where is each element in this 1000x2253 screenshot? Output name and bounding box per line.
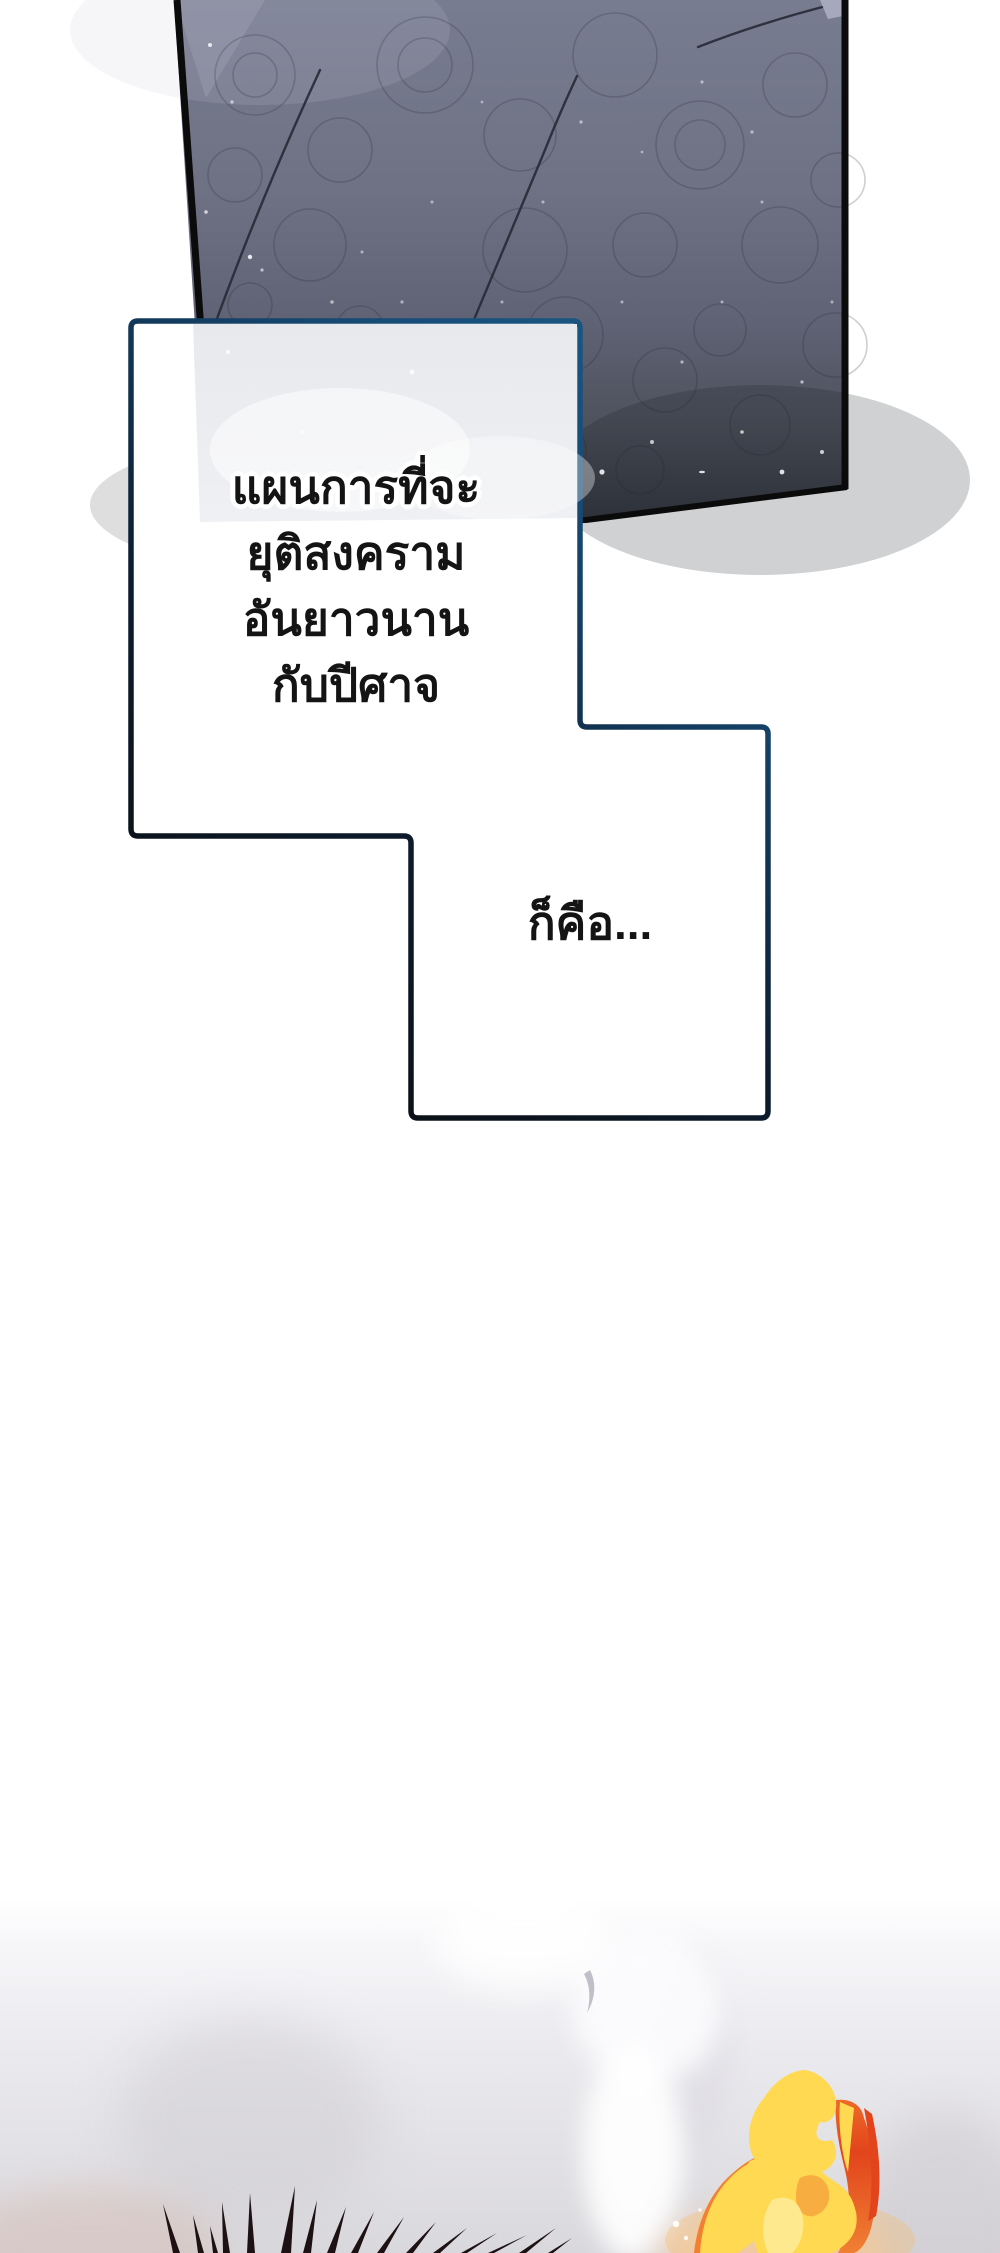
smoke-wisp-mark [584, 1970, 594, 2013]
page-artwork [0, 0, 1000, 2253]
ghost-panel-area [193, 324, 595, 522]
flame-artwork [665, 2070, 915, 2253]
spikes-artwork [163, 2186, 572, 2253]
flame-core [763, 2198, 803, 2253]
webtoon-page: แผนการที่จะ ยุติสงคราม อันยาวนาน กับปีศา… [0, 0, 1000, 2253]
